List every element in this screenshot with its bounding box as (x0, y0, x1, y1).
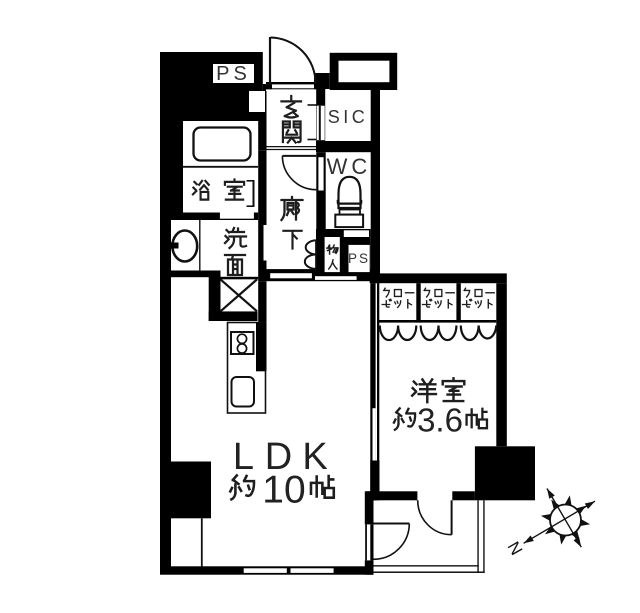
svg-text:3.6: 3.6 (417, 402, 463, 439)
svg-text:SIC: SIC (328, 107, 369, 127)
svg-text:10: 10 (262, 469, 305, 512)
svg-text:WC: WC (327, 154, 372, 179)
svg-text:K: K (302, 436, 327, 478)
svg-text:PS: PS (216, 63, 251, 85)
svg-text:L: L (233, 436, 254, 478)
svg-text:PS: PS (348, 251, 370, 266)
